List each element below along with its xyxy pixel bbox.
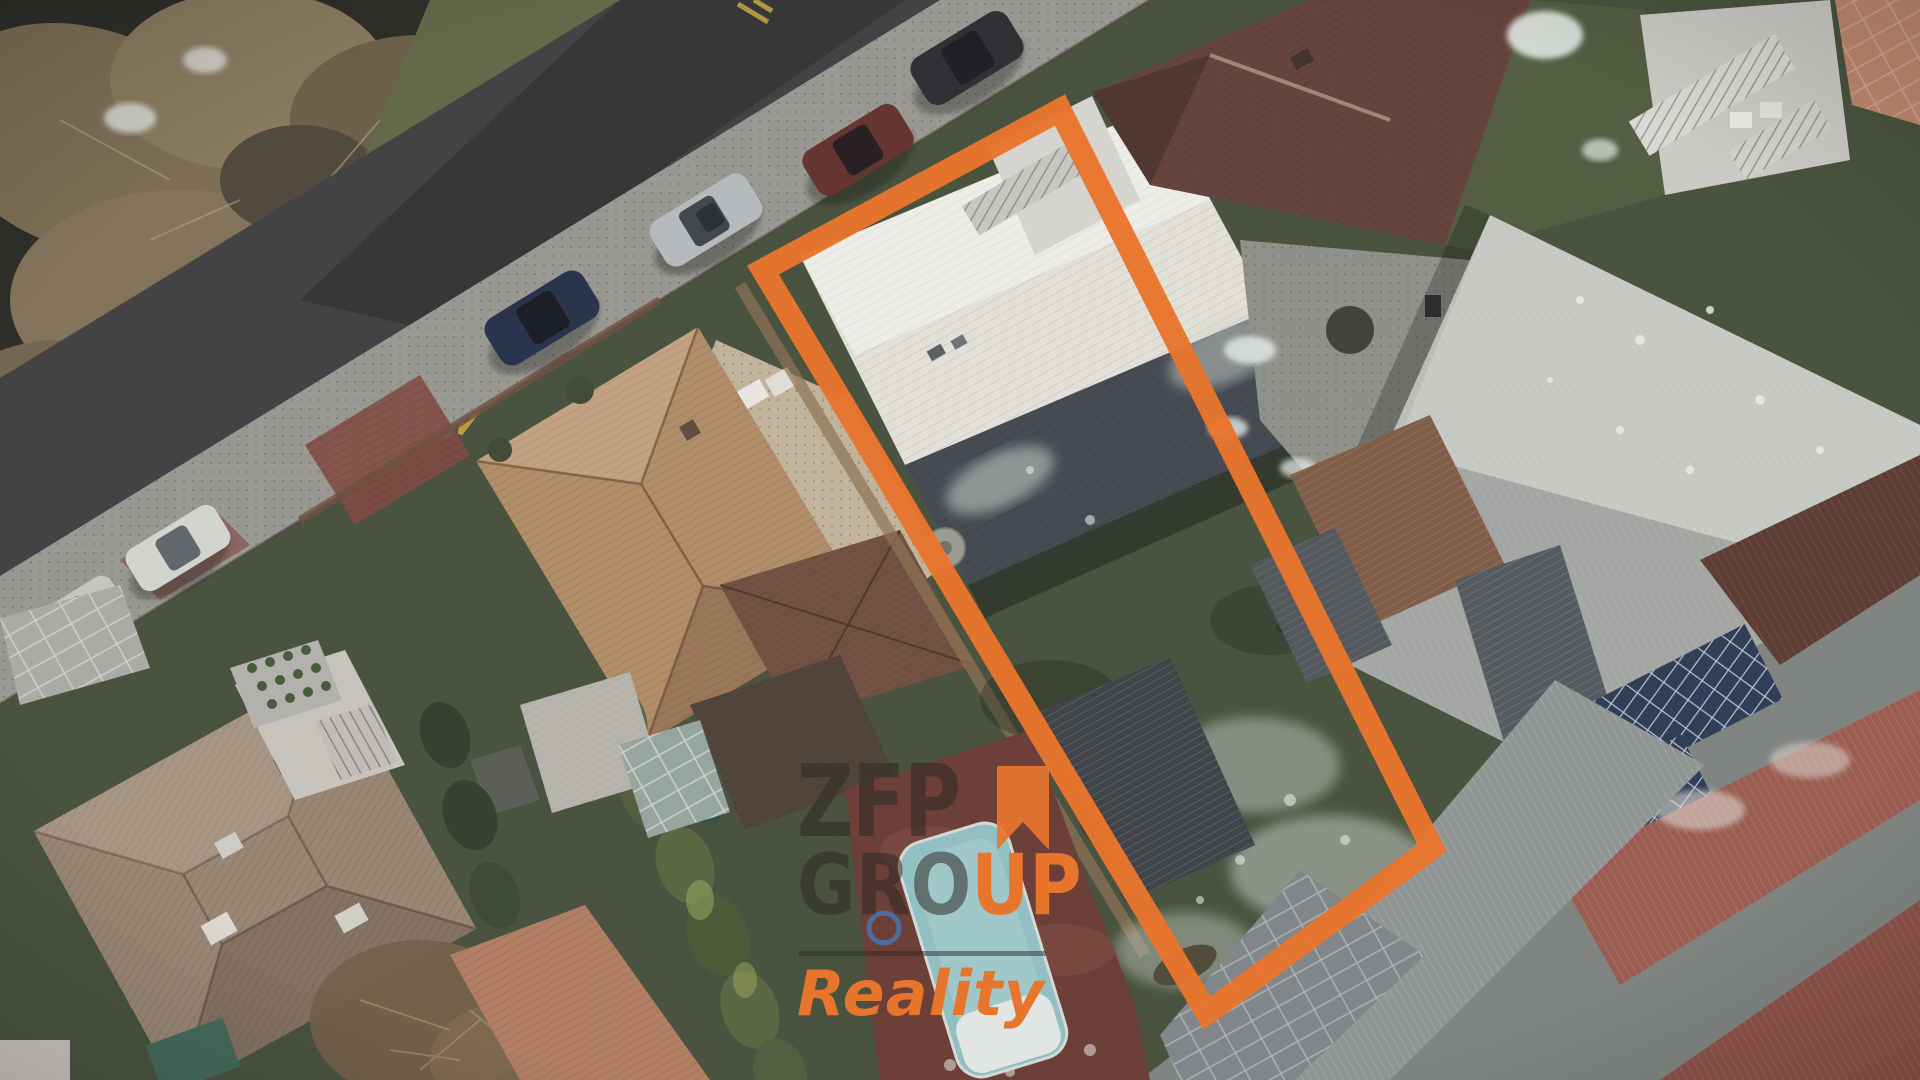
aerial-photo xyxy=(0,0,1920,1080)
aerial-photo-stage: ZFP GROUP Reality xyxy=(0,0,1920,1080)
